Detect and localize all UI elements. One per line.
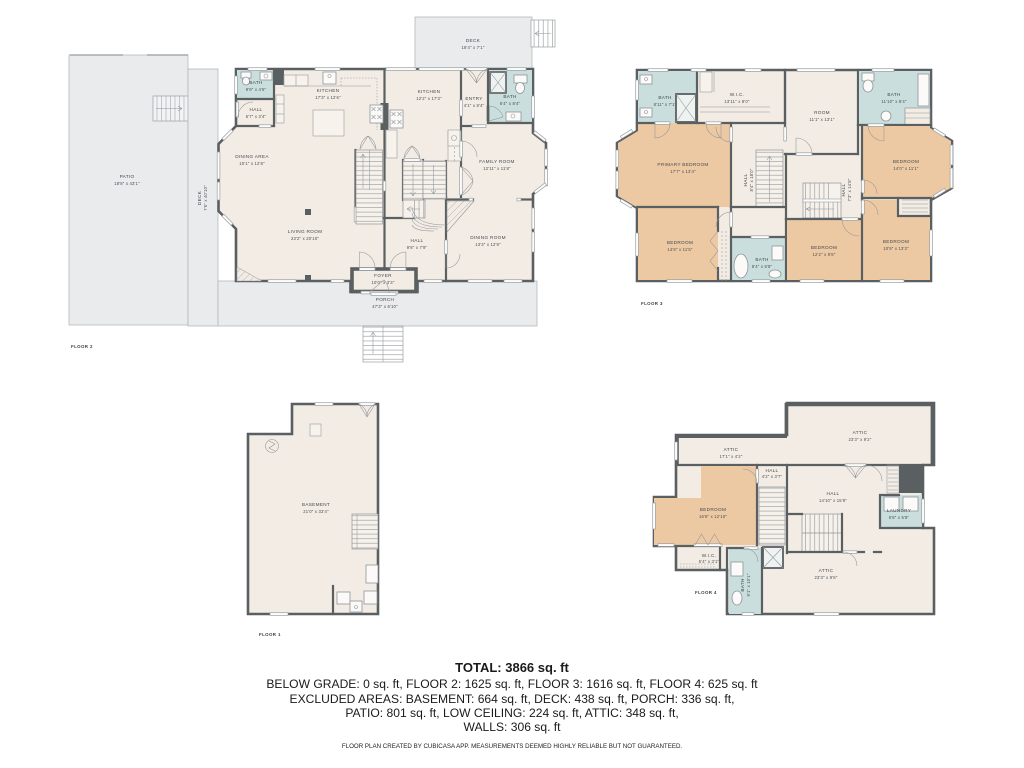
svg-text:BATH: BATH	[249, 80, 262, 85]
svg-text:8'4" x 18'0": 8'4" x 18'0"	[749, 168, 754, 191]
svg-text:HALL: HALL	[250, 107, 263, 112]
svg-text:FLOOR 3: FLOOR 3	[641, 301, 663, 306]
svg-text:FAMILY ROOM: FAMILY ROOM	[479, 159, 514, 164]
svg-text:HALL: HALL	[743, 173, 748, 186]
svg-text:BATH: BATH	[503, 94, 516, 99]
svg-text:DINING ROOM: DINING ROOM	[470, 235, 506, 240]
svg-text:BATH: BATH	[658, 95, 671, 100]
svg-text:PRIMARY BEDROOM: PRIMARY BEDROOM	[657, 162, 708, 167]
svg-text:14'0" x 11'1": 14'0" x 11'1"	[893, 166, 919, 171]
svg-text:7'6" x 40'10": 7'6" x 40'10"	[203, 185, 208, 211]
svg-text:BEDROOM: BEDROOM	[811, 245, 837, 250]
svg-text:17'7" x 13'4": 17'7" x 13'4"	[670, 169, 696, 174]
svg-text:DECK: DECK	[466, 38, 481, 43]
svg-text:BATH: BATH	[740, 578, 745, 591]
svg-text:PORCH: PORCH	[376, 297, 394, 302]
svg-text:BEDROOM: BEDROOM	[893, 159, 919, 164]
svg-text:FLOOR 2: FLOOR 2	[71, 344, 93, 349]
svg-text:9'8" x 7'9": 9'8" x 7'9"	[407, 245, 428, 250]
svg-text:BASEMENT: BASEMENT	[302, 502, 330, 507]
svg-text:18'4" x 7'1": 18'4" x 7'1"	[461, 45, 484, 50]
svg-text:12'2" x 9'8": 12'2" x 9'8"	[812, 252, 835, 257]
svg-text:KITCHEN: KITCHEN	[317, 88, 340, 93]
svg-text:5'7" x 3'4": 5'7" x 3'4"	[246, 114, 267, 119]
svg-text:ATTIC: ATTIC	[819, 568, 834, 573]
svg-text:HALL: HALL	[411, 238, 424, 243]
svg-text:11'10" x 8'4": 11'10" x 8'4"	[881, 99, 907, 104]
svg-text:BEDROOM: BEDROOM	[700, 507, 726, 512]
svg-text:21'0" x 33'4": 21'0" x 33'4"	[303, 509, 329, 514]
svg-text:BEDROOM: BEDROOM	[667, 240, 693, 245]
svg-text:14'10" x 15'8": 14'10" x 15'8"	[819, 498, 847, 503]
svg-text:47'3" x 6'10": 47'3" x 6'10"	[372, 304, 398, 309]
svg-text:12'11" x 11'8": 12'11" x 11'8"	[483, 166, 511, 171]
svg-text:ROOM: ROOM	[814, 110, 830, 115]
svg-text:W.I.C.: W.I.C.	[730, 92, 745, 97]
svg-text:7'3" x 14'8": 7'3" x 14'8"	[847, 178, 852, 201]
svg-text:23'2" x 20'10": 23'2" x 20'10"	[291, 236, 319, 241]
svg-text:BATH: BATH	[887, 92, 900, 97]
svg-text:BATH: BATH	[755, 257, 768, 262]
svg-text:HALL: HALL	[841, 183, 846, 196]
svg-text:16'6" x 12'10": 16'6" x 12'10"	[699, 514, 727, 519]
svg-text:9'9" x 4'5": 9'9" x 4'5"	[246, 87, 267, 92]
svg-text:DINING AREA: DINING AREA	[235, 154, 269, 159]
svg-text:HALL: HALL	[766, 468, 779, 473]
svg-text:ENTRY: ENTRY	[465, 96, 483, 101]
svg-text:13'11" x 8'0": 13'11" x 8'0"	[724, 99, 750, 104]
svg-text:BEDROOM: BEDROOM	[883, 239, 909, 244]
svg-text:FLOOR 1: FLOOR 1	[259, 632, 281, 637]
svg-text:18'8" x 43'1": 18'8" x 43'1"	[114, 181, 140, 186]
svg-text:ATTIC: ATTIC	[724, 447, 739, 452]
svg-text:FLOOR 4: FLOOR 4	[695, 590, 717, 595]
svg-text:5'4" x 3'1": 5'4" x 3'1"	[699, 559, 720, 564]
svg-text:W.I.C.: W.I.C.	[702, 553, 717, 558]
svg-text:9'1" x 10'1": 9'1" x 10'1"	[746, 573, 751, 596]
svg-text:ATTIC: ATTIC	[853, 430, 868, 435]
svg-text:23'3" x 9'8": 23'3" x 9'8"	[814, 575, 837, 580]
svg-text:14'8" x 11'5": 14'8" x 11'5"	[667, 247, 693, 252]
svg-text:LAUNDRY: LAUNDRY	[887, 508, 912, 513]
svg-text:23'3" x 9'2": 23'3" x 9'2"	[848, 437, 871, 442]
svg-text:4'2" x 3'7": 4'2" x 3'7"	[762, 474, 783, 479]
svg-text:10'1" x 12'8": 10'1" x 12'8"	[239, 161, 265, 166]
svg-text:PATIO: PATIO	[120, 174, 135, 179]
svg-text:KITCHEN: KITCHEN	[418, 89, 441, 94]
svg-text:LIVING ROOM: LIVING ROOM	[288, 229, 323, 234]
svg-text:11'1" x 13'1": 11'1" x 13'1"	[809, 117, 835, 122]
svg-text:17'3" x 12'6": 17'3" x 12'6"	[315, 95, 341, 100]
svg-text:4'1" x 8'4": 4'1" x 8'4"	[464, 103, 485, 108]
svg-text:6'8" x 5'8": 6'8" x 5'8"	[889, 515, 910, 520]
svg-text:8'11" x 7'1": 8'11" x 7'1"	[654, 102, 677, 107]
svg-text:6'4" x 8'4": 6'4" x 8'4"	[500, 101, 521, 106]
svg-text:13'3" x 12'9": 13'3" x 12'9"	[475, 242, 501, 247]
svg-text:DECK: DECK	[197, 190, 202, 205]
svg-text:FOYER: FOYER	[374, 273, 392, 278]
svg-text:12'2" x 17'3": 12'2" x 17'3"	[416, 96, 442, 101]
svg-text:17'1" x 4'2": 17'1" x 4'2"	[719, 454, 742, 459]
svg-text:HALL: HALL	[827, 491, 840, 496]
svg-text:10'9" x 13'3": 10'9" x 13'3"	[883, 246, 909, 251]
svg-text:8'4" x 6'8": 8'4" x 6'8"	[752, 264, 773, 269]
